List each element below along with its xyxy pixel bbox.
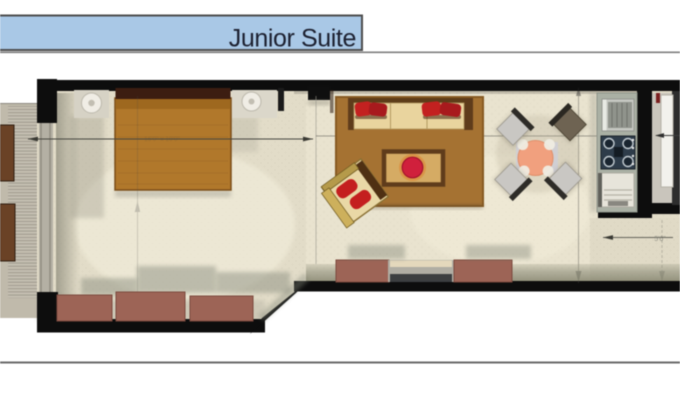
svg-text:5'6": 5'6" — [654, 236, 666, 243]
svg-text:16'0" x 10'0": 16'0" x 10'0" — [144, 136, 180, 143]
svg-text:Junior Suite: Junior Suite — [229, 25, 356, 53]
